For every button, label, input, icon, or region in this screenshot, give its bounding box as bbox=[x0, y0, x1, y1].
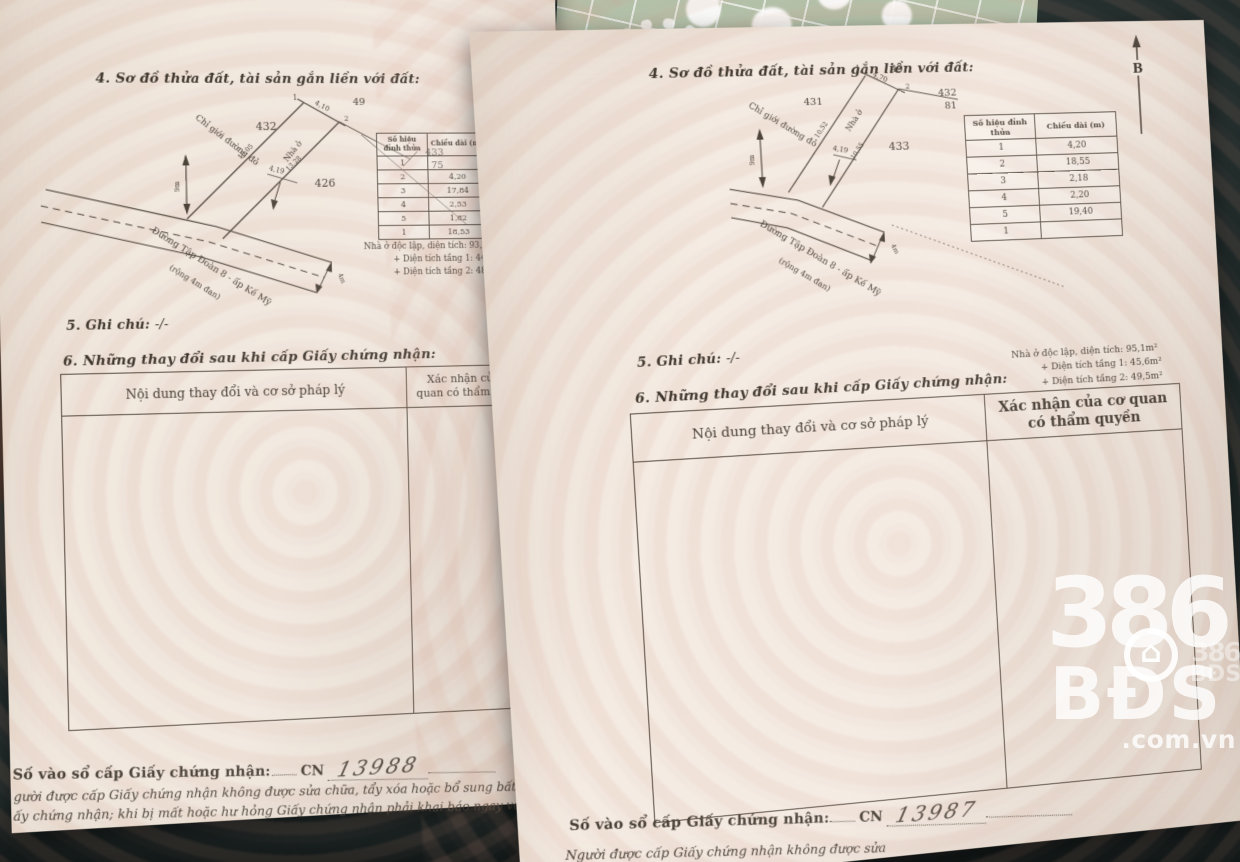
section5-value: -/- bbox=[155, 317, 169, 332]
north-arrow: B bbox=[1126, 35, 1152, 141]
top-parcel-label: 49 bbox=[890, 64, 903, 75]
vertex-1-label: 1 bbox=[855, 64, 860, 73]
edge-row: 118,53 bbox=[379, 224, 489, 239]
corner-sub-label: 81 bbox=[944, 101, 957, 112]
parcel-edge-table: Số hiệu đỉnh thửa Chiều dài (m) 1 24,20 … bbox=[376, 133, 489, 240]
dim-road: 4m bbox=[889, 243, 901, 256]
changes-col1-body bbox=[634, 441, 1007, 822]
left-parcel-label: 432 bbox=[256, 120, 277, 133]
vertex-2-label: 2 bbox=[344, 114, 349, 123]
lower-parcel-label: 433 bbox=[888, 140, 909, 153]
house-notes: Nhà ở độc lập, diện tích: 95,1m² + Diện … bbox=[1011, 341, 1163, 391]
dim-right-edge: 10,55 bbox=[849, 141, 866, 161]
section5: 5. Ghi chú: -/- bbox=[637, 351, 741, 371]
dim-depth: 9m bbox=[748, 154, 757, 165]
dim-left-edge: 10,52 bbox=[813, 120, 830, 140]
house-label: Nhà ở bbox=[843, 107, 865, 134]
changes-table: Nội dung thay đổi và cơ sở pháp lý Xác n… bbox=[60, 364, 543, 731]
edge-row: 1 bbox=[377, 155, 487, 169]
registry-line: Số vào sổ cấp Giấy chứng nhận:CN13987 bbox=[569, 797, 1072, 837]
left-parcel-label: 431 bbox=[803, 97, 823, 108]
edge-row: 42,53 bbox=[378, 196, 488, 211]
dim-road: 4m bbox=[336, 272, 348, 285]
footer-note: Người được cấp Giấy chứng nhận không đượ… bbox=[565, 838, 886, 862]
edge-table-col2-header: Chiều dài (m) bbox=[1034, 112, 1117, 139]
parcel-edge-table: Số hiệu đỉnh thửa Chiều dài (m) 14,20 21… bbox=[964, 111, 1123, 242]
edge-table-col1-header: Số hiệu đỉnh thửa bbox=[376, 133, 427, 155]
corner-parcel-label: 432 bbox=[938, 88, 957, 99]
section5-value: -/- bbox=[726, 351, 741, 367]
photo-scene: 4. Sơ đồ thửa đất, tài sản gắn liền với … bbox=[0, 0, 1240, 862]
vertex-2-label: 2 bbox=[905, 82, 910, 91]
top-parcel-label: 49 bbox=[353, 97, 366, 108]
registry-number-handwritten: 13987 bbox=[883, 796, 989, 828]
watermark-mini-brand: BĐS bbox=[1190, 665, 1240, 685]
section5-label: 5. Ghi chú: bbox=[637, 352, 722, 372]
dim-depth: 9m bbox=[173, 181, 181, 192]
section5-label: 5. Ghi chú: bbox=[66, 317, 150, 334]
red-boundary-label: Chỉ giới đường đỏ bbox=[193, 112, 261, 168]
registry-prefix: CN bbox=[855, 809, 887, 826]
vertex-1-label: 1 bbox=[293, 93, 298, 102]
dim-top: 4,70 bbox=[872, 70, 890, 84]
edge-table-col1-header: Số hiệu đỉnh thửa bbox=[964, 114, 1036, 141]
edge-row: 317,84 bbox=[378, 183, 488, 198]
section5: 5. Ghi chú: -/- bbox=[66, 317, 169, 334]
section4-title: 4. Sơ đồ thửa đất, tài sản gắn liền với … bbox=[95, 70, 420, 87]
registry-label: Số vào sổ cấp Giấy chứng nhận: bbox=[569, 810, 829, 834]
lower-parcel-label: 426 bbox=[315, 177, 336, 190]
north-label: B bbox=[1132, 62, 1143, 77]
registry-prefix: CN bbox=[296, 763, 328, 779]
dim-top: 4,10 bbox=[314, 98, 332, 113]
changes-col1-body bbox=[62, 408, 413, 730]
house-icon: ⌂ bbox=[1140, 638, 1161, 668]
dim-mid: 4,19 bbox=[832, 143, 849, 155]
watermark-house-circle: ⌂ bbox=[1124, 628, 1178, 682]
watermark-mini: 386 BĐS bbox=[1190, 642, 1240, 685]
edge-row: 51,82 bbox=[378, 210, 488, 225]
dim-mid: 4,19 bbox=[268, 163, 286, 176]
edge-row: 24,20 bbox=[377, 169, 487, 183]
registry-label: Số vào sổ cấp Giấy chứng nhận: bbox=[12, 764, 270, 784]
